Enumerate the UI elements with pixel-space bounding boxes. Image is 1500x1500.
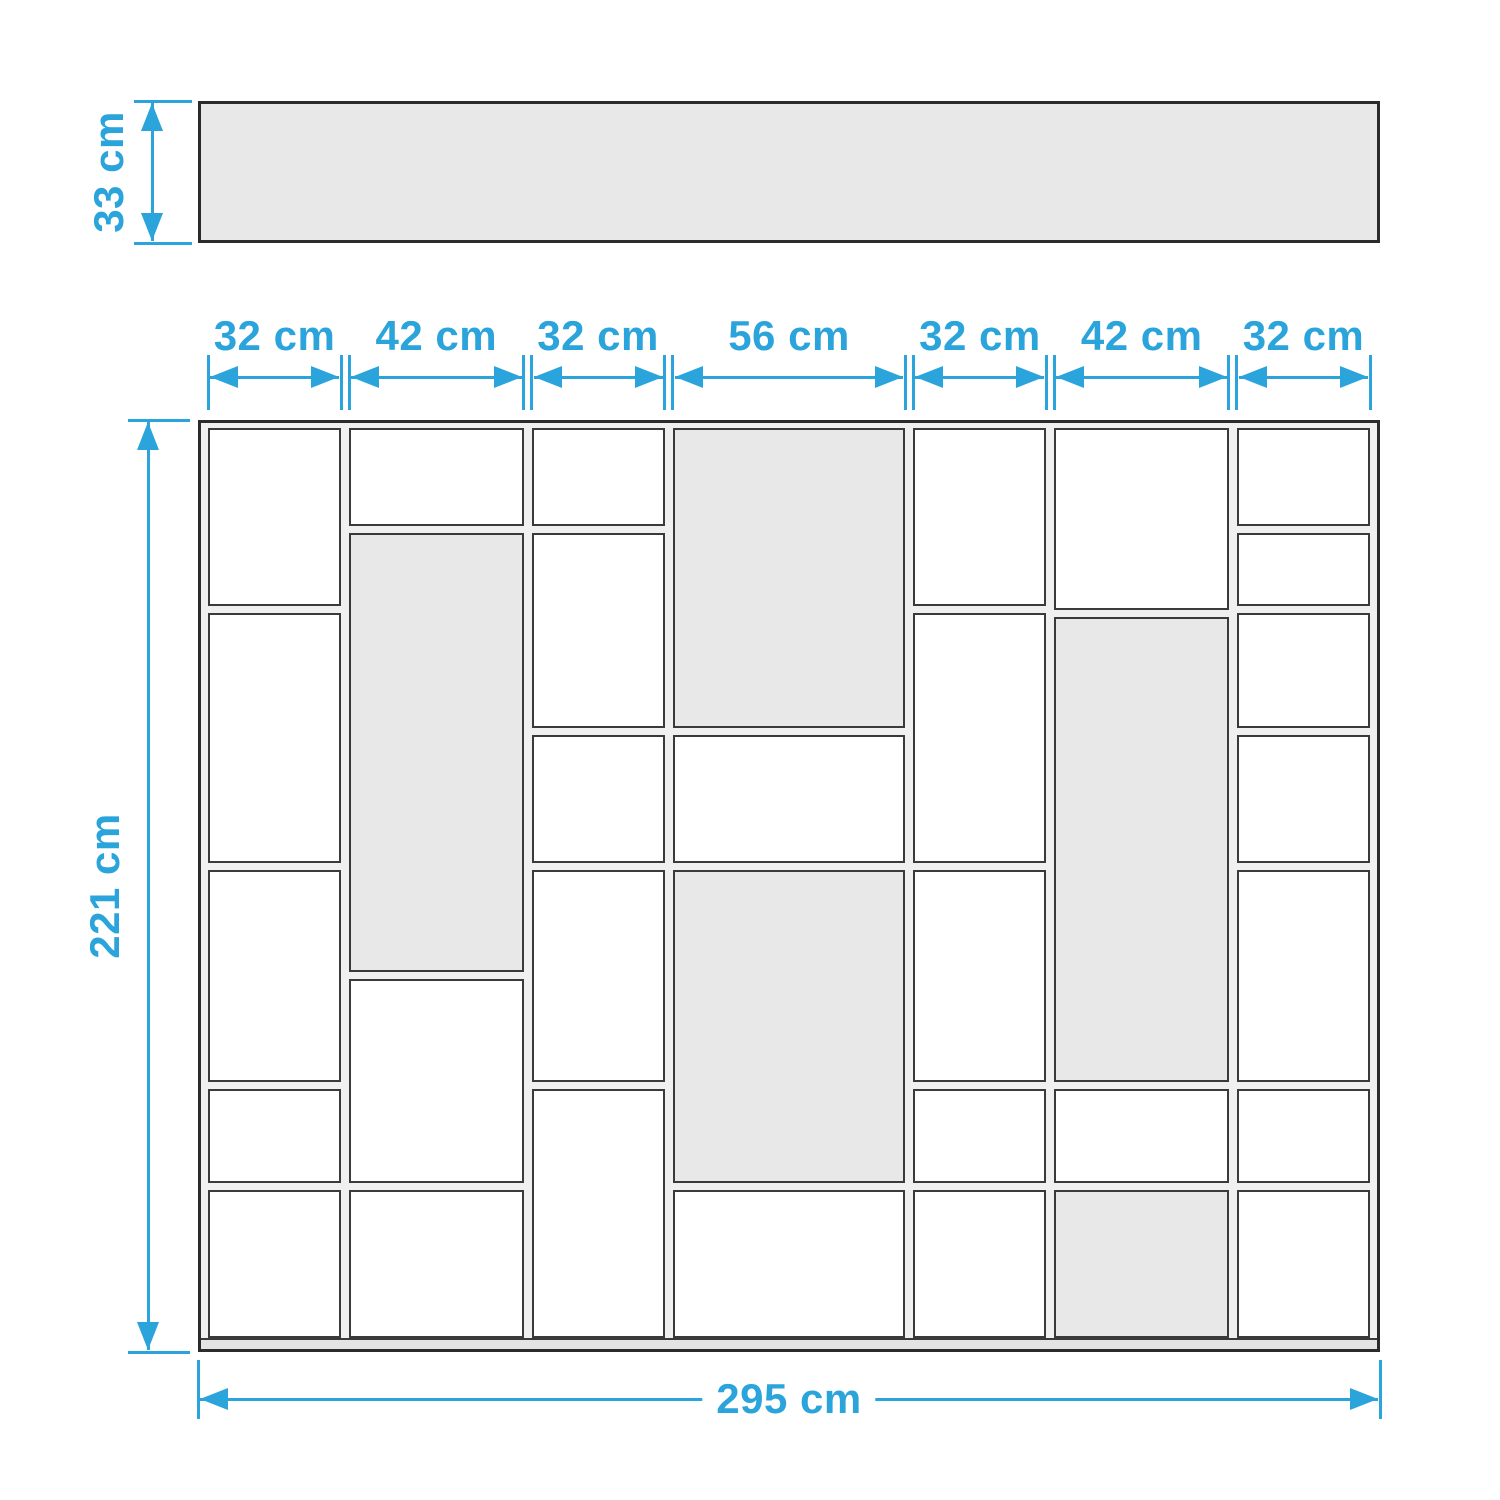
dimension-diagram: 32 cm42 cm32 cm56 cm32 cm42 cm32 cm33 cm… — [0, 0, 1500, 1500]
dim-arrowhead-right — [635, 366, 663, 388]
dim-arrowhead-left — [915, 366, 943, 388]
closed-compartment-c4-r1 — [673, 428, 906, 728]
column-width-label-7: 32 cm — [1243, 312, 1365, 360]
dim-arrowhead-down — [141, 213, 163, 241]
dim-arrowhead-left — [351, 366, 379, 388]
open-compartment-c3-r4 — [532, 870, 665, 1082]
open-compartment-c1-r2 — [208, 613, 341, 863]
dim-arrowhead-right — [1199, 366, 1227, 388]
open-compartment-c7-r5 — [1237, 870, 1370, 1082]
open-compartment-c4-r2 — [673, 735, 906, 863]
open-compartment-c7-r2 — [1237, 533, 1370, 606]
plinth-panel — [201, 1338, 1377, 1349]
open-compartment-c5-r2 — [913, 613, 1046, 863]
dim-arrowhead-left — [210, 366, 238, 388]
dim-arrowhead-left — [1056, 366, 1084, 388]
dim-extension-tick — [1045, 355, 1048, 410]
dim-extension-tick — [1379, 1360, 1382, 1419]
column-width-label-3: 32 cm — [537, 312, 659, 360]
open-compartment-c6-r3 — [1054, 1089, 1229, 1183]
dim-arrowhead-up — [137, 422, 159, 450]
open-compartment-c7-r6 — [1237, 1089, 1370, 1183]
column-width-label-5: 32 cm — [919, 312, 1041, 360]
open-compartment-c5-r1 — [913, 428, 1046, 606]
dim-extension-tick — [134, 242, 192, 245]
dim-extension-tick — [340, 355, 343, 410]
front-view-cabinet — [198, 420, 1380, 1352]
dim-arrowhead-right — [311, 366, 339, 388]
open-compartment-c1-r1 — [208, 428, 341, 606]
open-compartment-c2-r4 — [349, 1190, 524, 1338]
dim-arrowhead-right — [1016, 366, 1044, 388]
height-dim-line — [147, 422, 150, 1350]
column-width-dim-line — [675, 376, 904, 379]
total-height-label: 221 cm — [81, 813, 129, 958]
open-compartment-c7-r3 — [1237, 613, 1370, 728]
top-view-panel — [198, 101, 1380, 243]
dim-arrowhead-right — [875, 366, 903, 388]
open-compartment-c5-r4 — [913, 1089, 1046, 1183]
dim-arrowhead-left — [534, 366, 562, 388]
column-width-label-6: 42 cm — [1081, 312, 1203, 360]
dim-arrowhead-left — [675, 366, 703, 388]
dim-extension-tick — [1227, 355, 1230, 410]
dim-arrowhead-left — [200, 1388, 228, 1410]
closed-compartment-c6-r4 — [1054, 1190, 1229, 1338]
closed-compartment-c2-r2 — [349, 533, 524, 973]
open-compartment-c6-r1 — [1054, 428, 1229, 610]
dim-arrowhead-up — [141, 103, 163, 131]
open-compartment-c2-r1 — [349, 428, 524, 526]
dim-arrowhead-left — [1239, 366, 1267, 388]
total-width-label: 295 cm — [702, 1375, 875, 1423]
open-compartment-c3-r3 — [532, 735, 665, 863]
dim-arrowhead-right — [1340, 366, 1368, 388]
open-compartment-c3-r5 — [532, 1089, 665, 1338]
column-width-label-2: 42 cm — [376, 312, 498, 360]
dim-extension-tick — [904, 355, 907, 410]
open-compartment-c1-r5 — [208, 1190, 341, 1338]
dim-arrowhead-right — [494, 366, 522, 388]
open-compartment-c1-r4 — [208, 1089, 341, 1183]
open-compartment-c1-r3 — [208, 870, 341, 1082]
dim-extension-tick — [522, 355, 525, 410]
open-compartment-c5-r5 — [913, 1190, 1046, 1338]
closed-compartment-c4-r3 — [673, 870, 906, 1183]
open-compartment-c4-r4 — [673, 1190, 906, 1338]
open-compartment-c2-r3 — [349, 979, 524, 1183]
open-compartment-c7-r1 — [1237, 428, 1370, 526]
dim-extension-tick — [663, 355, 666, 410]
dim-extension-tick — [128, 1351, 190, 1354]
open-compartment-c3-r1 — [532, 428, 665, 526]
open-compartment-c7-r4 — [1237, 735, 1370, 863]
column-width-label-4: 56 cm — [728, 312, 850, 360]
column-width-label-1: 32 cm — [214, 312, 336, 360]
depth-dimension-label: 33 cm — [85, 111, 133, 233]
closed-compartment-c6-r2 — [1054, 617, 1229, 1082]
dim-arrowhead-right — [1350, 1388, 1378, 1410]
dim-extension-tick — [1369, 355, 1372, 410]
open-compartment-c5-r3 — [913, 870, 1046, 1082]
open-compartment-c3-r2 — [532, 533, 665, 728]
open-compartment-c7-r7 — [1237, 1190, 1370, 1338]
dim-arrowhead-down — [137, 1322, 159, 1350]
